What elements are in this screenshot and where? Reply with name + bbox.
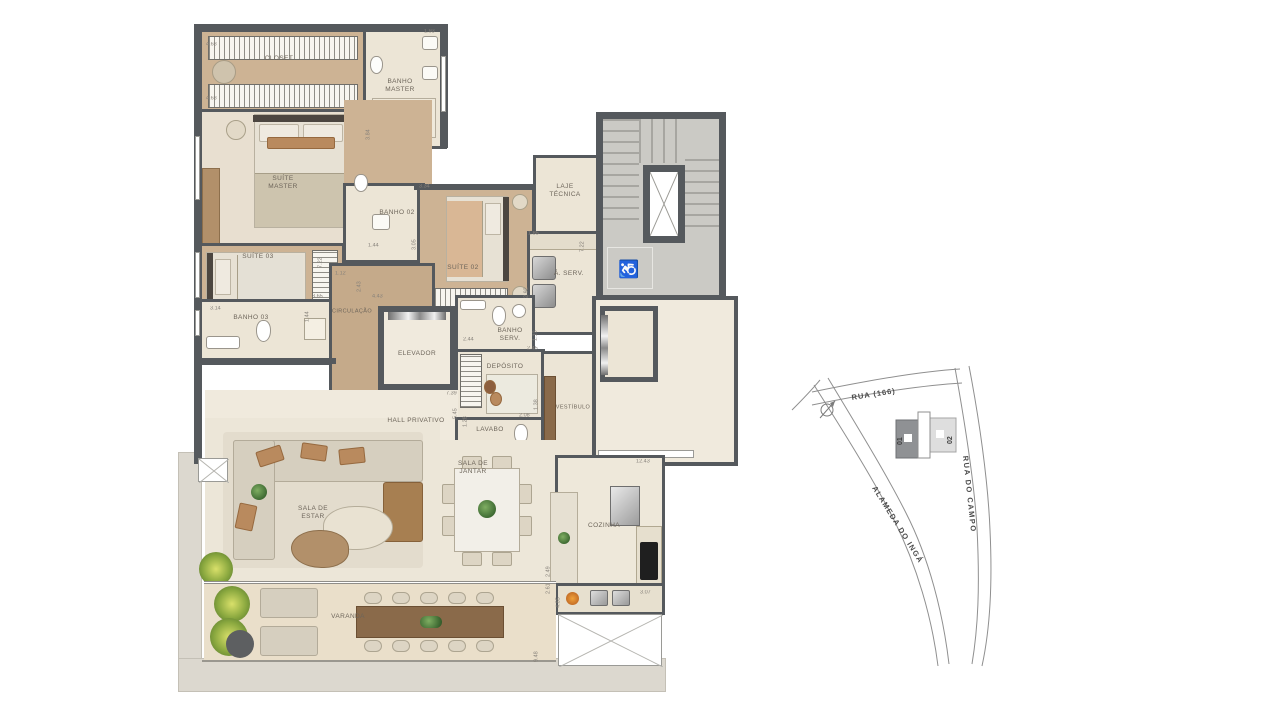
label-circulacao: CIRCULAÇÃO: [332, 309, 372, 316]
label-banho-02: BANHO 02: [379, 209, 414, 217]
social-elevator: [600, 306, 658, 382]
unit-01-label: 01: [897, 437, 904, 445]
label-closet: CLOSET: [265, 55, 293, 63]
shelving: [460, 354, 482, 408]
outdoor-chair: [476, 640, 494, 652]
label-lavabo: LAVABO: [476, 426, 503, 434]
street-right-label: RUA DO CAMPO: [961, 455, 978, 533]
centerpiece: [478, 500, 496, 518]
shower: [304, 318, 326, 340]
cushion: [300, 442, 328, 461]
dining-chair: [492, 552, 512, 566]
toilet: [354, 174, 368, 192]
outdoor-chair: [476, 592, 494, 604]
social-hall: [596, 300, 734, 462]
outdoor-chair: [420, 592, 438, 604]
label-vestibulo: VESTÍBULO: [556, 405, 590, 412]
sink: [422, 66, 438, 80]
coffee-table: [291, 530, 349, 568]
outdoor-chair: [392, 592, 410, 604]
plant: [251, 484, 267, 500]
varanda-rail: [202, 660, 556, 662]
kitchen-counter: [558, 586, 662, 612]
label-banho-master: BANHO MASTER: [385, 78, 415, 94]
wall-left: [194, 24, 202, 464]
window: [195, 252, 200, 298]
window: [195, 136, 200, 200]
outdoor-chair: [448, 592, 466, 604]
label-elevador: ELEVADOR: [398, 350, 436, 358]
wall-sala-divide: [196, 358, 336, 364]
nightstand: [512, 194, 528, 210]
stairs: [639, 119, 685, 163]
dining-chair: [518, 484, 532, 504]
label-varanda: VARANDA: [331, 613, 365, 621]
room-varanda: [204, 584, 556, 660]
window: [195, 310, 200, 336]
stairs: [685, 159, 719, 229]
wheelchair-icon: ♿: [609, 258, 651, 279]
sink: [206, 336, 240, 349]
label-hall-privativo: HALL PRIVATIVO: [387, 417, 444, 425]
plant: [558, 532, 570, 544]
label-deposito: DEPÓSITO: [487, 363, 524, 371]
label-banho-serv: BANHO SERV.: [497, 327, 522, 343]
building-core: [918, 412, 930, 458]
location-map: 01 02 RUA (166) RUA DO CAMPO ALAMEDA DO …: [790, 358, 1040, 668]
floorplan-page: ♿: [0, 0, 1280, 720]
outdoor-chair: [448, 640, 466, 652]
window: [441, 56, 446, 112]
stairs: [603, 119, 639, 227]
room-suite-02: [420, 190, 532, 312]
pouf: [212, 60, 236, 84]
outdoor-chair: [420, 640, 438, 652]
building-footprint: 01 02: [896, 412, 956, 458]
room-banho-03: [200, 302, 332, 360]
washer: [532, 256, 556, 280]
room-elevador: [378, 306, 456, 390]
toilet: [256, 320, 271, 342]
stairwell: ♿: [596, 112, 726, 302]
label-suite-master: SUÍTE MASTER: [268, 175, 298, 191]
label-sala-jantar: SALA DE JANTAR: [458, 460, 488, 476]
lounge-chair: [260, 588, 318, 618]
room-sala-estar: [205, 418, 440, 584]
label-laje-tecnica: LAJE TÉCNICA: [549, 183, 580, 199]
room-a-serv: [530, 234, 598, 332]
dining-chair: [518, 516, 532, 536]
dining-chair: [462, 552, 482, 566]
sink: [422, 36, 438, 50]
outdoor-chair: [364, 592, 382, 604]
road-small-line: [792, 380, 820, 410]
bench: [202, 168, 220, 252]
nightstand: [226, 120, 246, 140]
accessible-area: ♿: [607, 247, 653, 289]
outdoor-chair: [392, 640, 410, 652]
cooktop: [640, 542, 658, 580]
toilet: [370, 56, 383, 74]
glass-line: [204, 581, 556, 584]
side-table: [226, 630, 254, 658]
elevator-doors: [601, 315, 608, 375]
wall-suite02-top: [414, 184, 536, 190]
street-top-label: RUA (166): [851, 386, 896, 402]
fridge: [610, 486, 640, 526]
cushion: [490, 392, 502, 406]
round-sink: [512, 304, 526, 318]
plant: [214, 586, 250, 622]
bed: [254, 114, 346, 228]
counter: [460, 300, 486, 310]
label-sala-estar: SALA DE ESTAR: [298, 505, 328, 521]
fruit-bowl: [566, 592, 579, 605]
elevator-shaft: [643, 165, 685, 243]
lounge-chair: [260, 626, 318, 656]
window-xbox: [198, 458, 228, 482]
cushion: [338, 447, 366, 466]
wardrobe: [208, 84, 358, 108]
label-suite-03: SUÍTE 03: [242, 253, 273, 261]
counter: [530, 234, 596, 250]
sink: [612, 590, 630, 606]
outdoor-chair: [364, 640, 382, 652]
window: [598, 450, 694, 458]
unit-02-label: 02: [947, 436, 954, 444]
centerpiece: [420, 616, 442, 628]
toilet: [492, 306, 506, 326]
label-a-serv: Á. SERV.: [554, 270, 584, 278]
label-cozinha: COZINHA: [588, 522, 620, 530]
room-banho-serv: [458, 298, 532, 352]
sink: [590, 590, 608, 606]
room-banho-02: [346, 186, 422, 260]
hatched-area: [558, 614, 662, 666]
label-suite-02: SUÍTE 02: [447, 264, 478, 272]
wall-top: [196, 24, 448, 32]
elevator-doors: [388, 312, 446, 320]
label-banho-03: BANHO 03: [233, 314, 268, 322]
dryer: [532, 284, 556, 308]
